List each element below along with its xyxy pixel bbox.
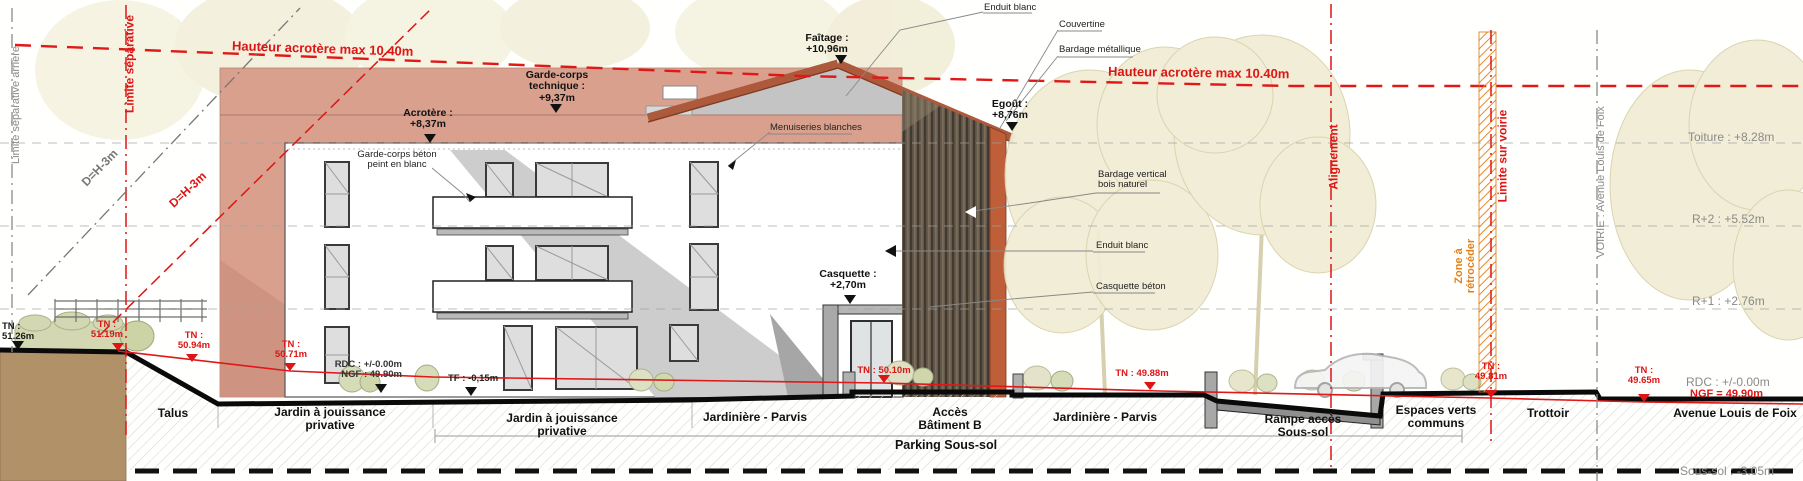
level-ngf: NGF = 49.90m — [1690, 389, 1763, 401]
level-r2: R+2 : +5.52m — [1692, 213, 1765, 226]
trees — [1004, 35, 1803, 395]
zone-jardin-1: Jardin à jouissance privative — [274, 406, 385, 432]
level-toiture: Toiture : +8.28m — [1688, 131, 1774, 144]
zone-acces-l1: Accès — [918, 406, 981, 419]
alignement-label: Alignement — [1328, 124, 1341, 189]
acrotere-label: Acrotère : +8,37m — [403, 108, 453, 131]
egout-label: Egoût : +8,76m — [992, 99, 1028, 122]
faitage-label: Faîtage : +10,96m — [805, 33, 848, 56]
tn-49-81-label: TN : 49.81m — [1475, 362, 1507, 383]
tn-50-71-label: TN : 50.71m — [275, 340, 307, 361]
tn-49-65-l2: 49.65m — [1628, 376, 1660, 386]
level-r1: R+1 : +2.76m — [1692, 295, 1765, 308]
car — [1295, 354, 1426, 397]
level-rdc: RDC : +/-0.00m — [1686, 376, 1770, 389]
zone-acces-batiment-b: Accès Bâtiment B — [918, 406, 981, 432]
garde-corps-beton-label: Garde-corps béton peint en blanc — [357, 150, 436, 171]
rdc-left-l2: NGF : 49.90m — [335, 370, 402, 380]
zone-jardiniere-parvis-1: Jardinière - Parvis — [703, 411, 807, 424]
menuiseries-blanches-label: Menuiseries blanches — [770, 123, 862, 133]
garde-corps-technique-label: Garde-corps technique : +9,37m — [526, 70, 588, 104]
couvertine-label: Couvertine — [1059, 20, 1105, 30]
zone-rampe-l2: Sous-sol — [1265, 426, 1342, 439]
zone-jardin1-l2: privative — [274, 419, 385, 432]
bardage-metallique-label: Bardage métallique — [1059, 45, 1141, 55]
zone-acces-l2: Bâtiment B — [918, 419, 981, 432]
faitage-l2: +10,96m — [805, 44, 848, 55]
zone-jardin-2: Jardin à jouissance privative — [506, 412, 617, 438]
tn-50-71-l2: 50.71m — [275, 350, 307, 360]
enduit-blanc-top-label: Enduit blanc — [984, 3, 1036, 13]
zone-a-retroceder-label: Zone à rétrocéder — [1454, 239, 1478, 293]
tn-51-19-label: TN : 51.19m — [91, 320, 123, 341]
tn-50-94-label: TN : 50.94m — [178, 331, 210, 352]
zone-parking: Parking Sous-sol — [895, 439, 997, 453]
zone-jardin2-l2: privative — [506, 425, 617, 438]
gc-beton-l2: peint en blanc — [357, 160, 436, 170]
casquette-label: Casquette : +2,70m — [819, 269, 876, 292]
enduit-blanc-mid-label: Enduit blanc — [1096, 241, 1148, 251]
voirie-axis-label: VOIRIE : Avenue Louis de Foix — [1596, 106, 1608, 257]
zone-talus: Talus — [158, 407, 188, 420]
zone-trottoir: Trottoir — [1527, 407, 1569, 420]
rdc-ngf-left-label: RDC : +/-0.00m NGF : 49.90m — [335, 360, 402, 381]
zone-jardiniere-parvis-2: Jardinière - Parvis — [1053, 411, 1157, 424]
zone-a-retroceder-l2: rétrocéder — [1466, 239, 1478, 293]
tn-49-65-label: TN : 49.65m — [1628, 366, 1660, 387]
casquette-beton-label: Casquette béton — [1096, 282, 1166, 292]
bardage-vertical-l2: bois naturel — [1098, 180, 1167, 190]
tn-50-94-l2: 50.94m — [178, 341, 210, 351]
wood-tower — [902, 90, 1006, 397]
tn-50-10-label: TN : 50.10m — [857, 366, 910, 376]
zone-espaces-verts: Espaces verts communs — [1396, 404, 1477, 430]
zone-avenue: Avenue Louis de Foix — [1673, 407, 1797, 420]
level-sous-sol: Sous-sol : -3.05m — [1680, 465, 1774, 478]
casquette-l2: +2,70m — [819, 280, 876, 291]
limite-sur-voirie-label: Limite sur voirie — [1497, 110, 1510, 203]
hauteur-acrotere-right-label: Hauteur acrotère max 10.40m — [1108, 65, 1290, 82]
gct-l2: technique : — [526, 81, 588, 92]
egout-l2: +8,76m — [992, 110, 1028, 121]
limite-separative-label: Limite séparative — [124, 15, 137, 113]
tn-51-19-l2: 51.19m — [91, 330, 123, 340]
acrotere-l2: +8,37m — [403, 119, 453, 130]
bardage-vertical-label: Bardage vertical bois naturel — [1098, 170, 1167, 191]
elevation-drawing: Limite séparative arrière Limite séparat… — [0, 0, 1803, 481]
tn-51-26-l2: 51.26m — [2, 332, 34, 342]
limite-separative-arriere-label: Limite séparative arrière — [11, 46, 23, 164]
zone-jardin1-l1: Jardin à jouissance — [274, 406, 385, 419]
tn-49-88-label: TN : 49.88m — [1115, 369, 1168, 379]
zone-jardin2-l1: Jardin à jouissance — [506, 412, 617, 425]
tf-label: TF : -0,15m — [448, 374, 498, 384]
zone-espaces-l2: communs — [1396, 417, 1477, 430]
zone-rampe-l1: Rampe accès — [1265, 413, 1342, 426]
zone-espaces-l1: Espaces verts — [1396, 404, 1477, 417]
zone-rampe: Rampe accès Sous-sol — [1265, 413, 1342, 439]
tn-51-26-label: TN : 51.26m — [2, 322, 34, 343]
gct-l3: +9,37m — [526, 93, 588, 104]
tn-49-81-l2: 49.81m — [1475, 372, 1507, 382]
